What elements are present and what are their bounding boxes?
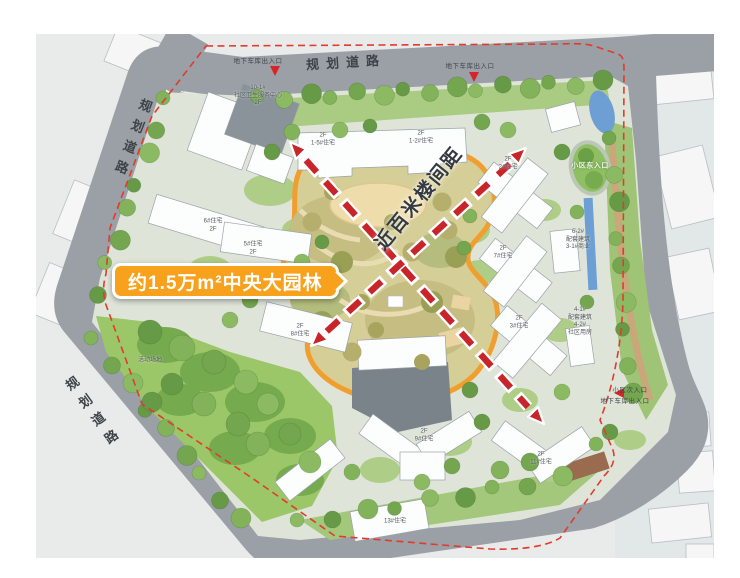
building-label: 2F 1-5#住宅	[311, 133, 335, 148]
building-label: 2F 2#住宅	[499, 157, 518, 172]
building-label: 2F 1-2#住宅	[409, 131, 433, 146]
central-garden-callout: 约1.5万m²中央大园林	[112, 263, 339, 299]
entrance-label: 地下车库出入口	[601, 398, 650, 406]
entrance-label: 小区次入口	[613, 387, 648, 395]
road-label-left: 规划道路	[107, 96, 156, 185]
entrance-label: 地下车库出入口	[446, 63, 495, 71]
building-label: 2F 11#住宅	[530, 452, 552, 467]
callout-pointer-icon	[327, 270, 348, 291]
building-label: 10-1# 社区卫生服务中心 2F	[234, 85, 282, 108]
building-label: 2F 3#住宅	[510, 316, 529, 331]
road-label-top: 规划道路	[305, 50, 386, 74]
building-label: 6#住宅 2F	[204, 219, 223, 234]
building-label: 6-2# 配套建筑 3-1#商业	[566, 229, 590, 252]
entrance-label: 小区东入口	[571, 163, 609, 172]
building-label: 活动场地	[138, 357, 162, 365]
building-label: 13#住宅	[384, 518, 406, 526]
building-label: 5#住宅 2F	[244, 242, 263, 257]
entrance-label: 地下车库出入口	[234, 58, 283, 66]
building-label: 4-1# 配套建筑 4-2# 社区用房	[568, 307, 592, 337]
building-label: 2F 7#住宅	[494, 246, 513, 261]
callout-text: 约1.5万m²中央大园林	[128, 268, 323, 295]
building-label: 2F 9#住宅	[415, 429, 434, 444]
building-label: 2F 8#住宅	[291, 324, 310, 339]
road-label-bottom-left: 规划道路	[60, 373, 127, 455]
site-plan: 规划道路 规划道路 规划道路 近百米楼间距 约1.5万m²中央大园林 地下车库出…	[0, 0, 740, 578]
label-layer: 规划道路 规划道路 规划道路 近百米楼间距 约1.5万m²中央大园林 地下车库出…	[0, 0, 740, 578]
